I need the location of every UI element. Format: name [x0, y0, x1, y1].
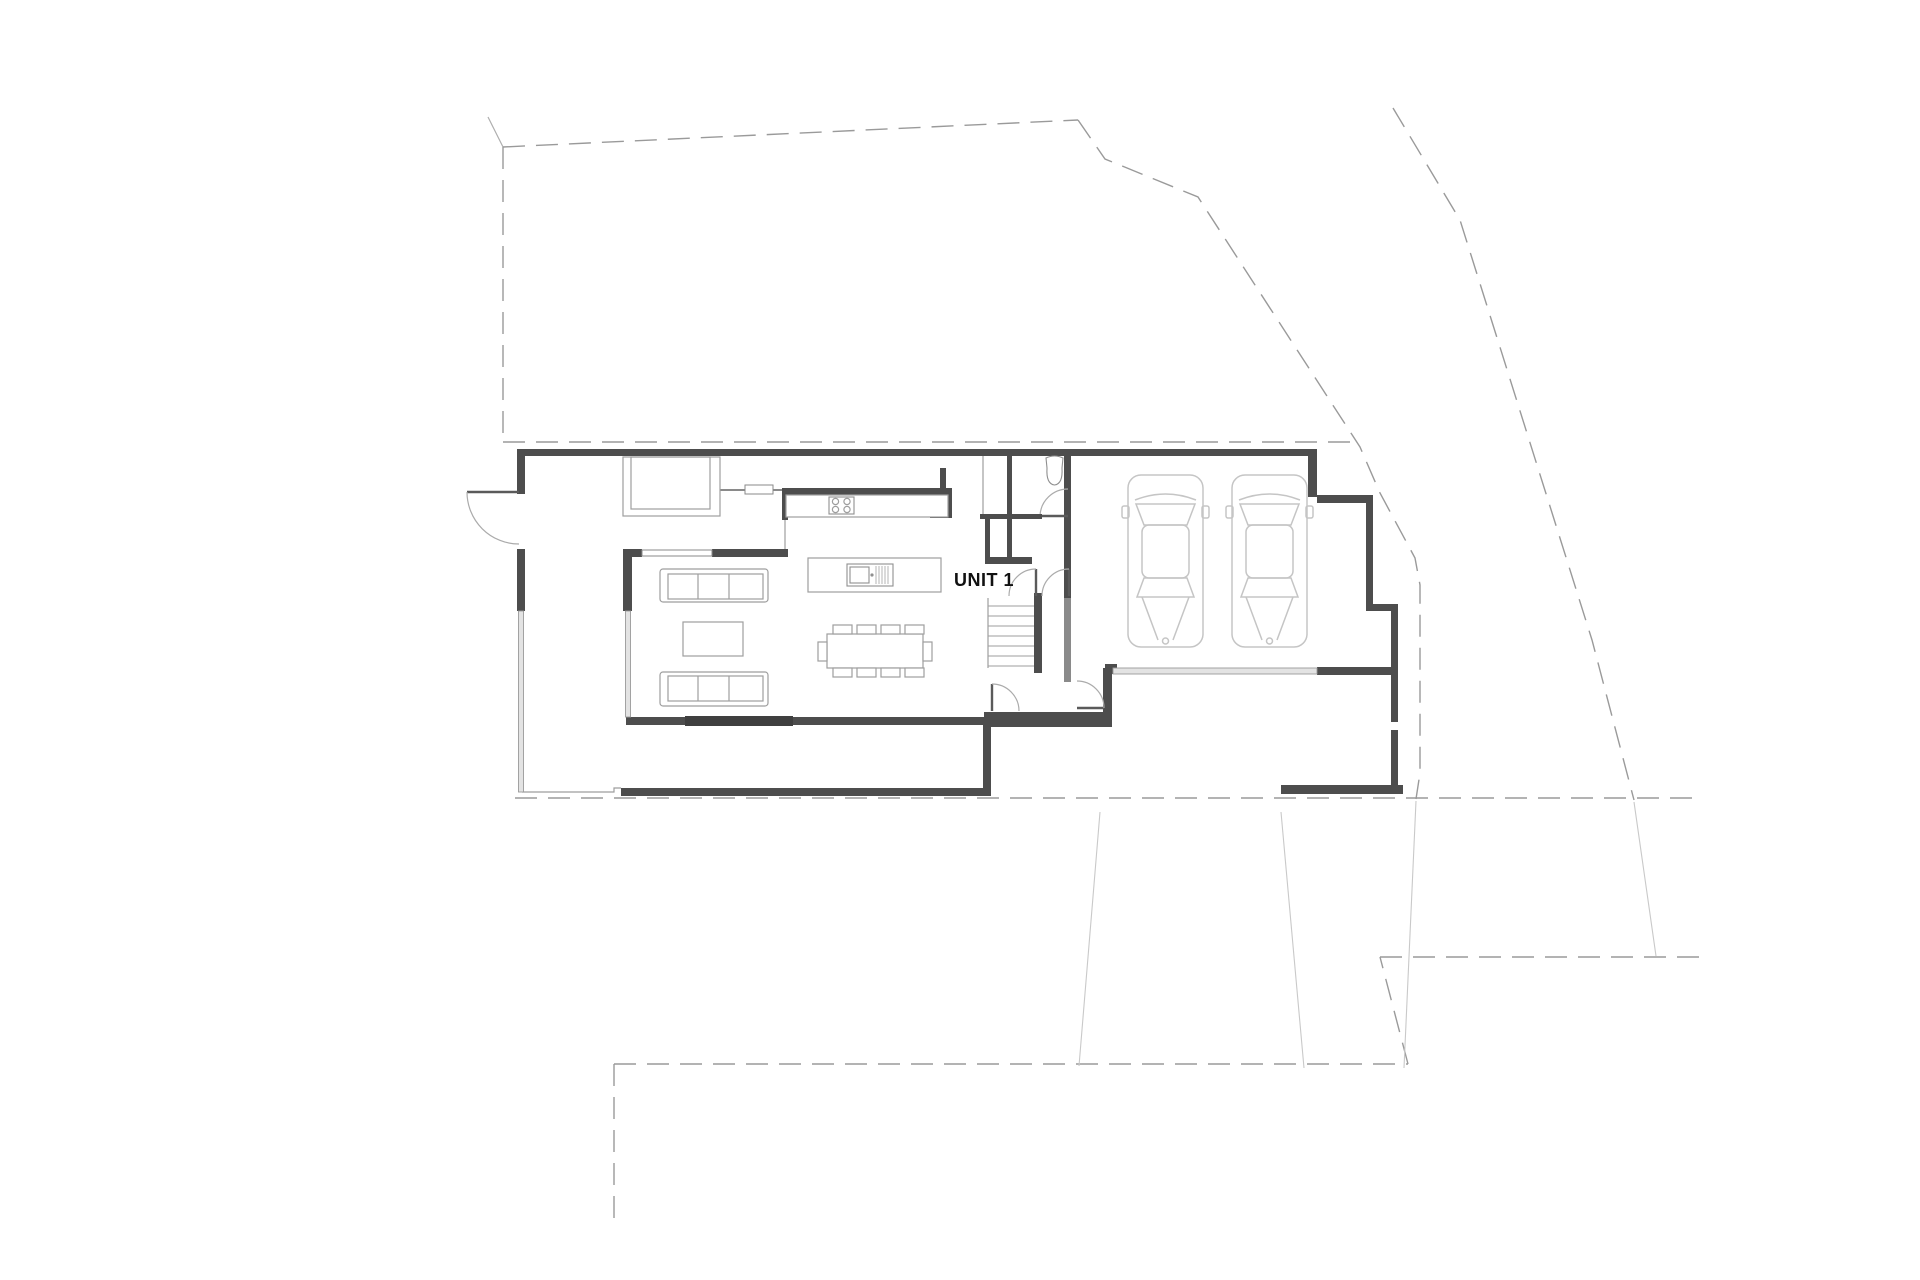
wall-garage-step-h1: [1317, 495, 1373, 503]
driveway-edge-2: [1281, 812, 1304, 1068]
wall-living-west: [623, 557, 632, 611]
unit-label: UNIT 1: [954, 570, 1014, 590]
floor-plan-drawing: UNIT 1: [0, 0, 1920, 1280]
living-room: [660, 569, 768, 706]
car-icon: [1122, 475, 1209, 647]
sink-icon: [847, 564, 893, 586]
stair-well-left: [985, 519, 990, 558]
dining-set: [818, 625, 932, 677]
stair-shaft-upper: [980, 455, 1042, 564]
window-west-exterior: [519, 611, 524, 792]
wall-terrace-connector: [983, 725, 991, 793]
dining-table: [827, 634, 923, 668]
wall-west-upper: [517, 449, 525, 494]
wall-stair-east: [1034, 593, 1042, 673]
driveway-edge-4: [1634, 802, 1656, 956]
wall-living-south: [626, 717, 986, 725]
vestibule-door: [1077, 681, 1104, 708]
wall-kitchen-column: [940, 468, 946, 490]
boundary-south-kink: [1380, 957, 1408, 1064]
boundary-corner-tick: [488, 117, 503, 147]
pantry-inner: [631, 457, 710, 509]
kitchen-counter: [786, 495, 948, 517]
garage: [1122, 475, 1313, 647]
sofa-south: [660, 672, 768, 706]
terrace-edge: [522, 788, 621, 792]
wall-north: [517, 449, 1317, 456]
coffee-table: [683, 622, 743, 656]
wc-door: [1040, 489, 1068, 516]
driveway-edge-3: [1404, 801, 1416, 1068]
dining-chair: [818, 642, 827, 661]
wall-garage-east-c: [1391, 730, 1398, 792]
stair-shaft-wall: [1007, 455, 1012, 560]
wall-vestibule-east: [1103, 668, 1112, 727]
stair-main: [988, 598, 1034, 668]
pantry-outer: [623, 457, 720, 516]
window-garage-south: [1113, 668, 1317, 674]
dining-chair: [881, 668, 900, 677]
boundary-east-inner: [1078, 120, 1420, 799]
wall-terrace-south: [621, 788, 991, 796]
cooktop-icon: [829, 497, 854, 514]
property-boundary-lines: [488, 108, 1700, 1222]
window-band-living-south: [685, 716, 793, 726]
wall-kitchen-back: [782, 488, 952, 495]
dining-chair: [905, 625, 924, 634]
wall-garage-east-a: [1308, 449, 1317, 497]
wall-garage-south-east: [1317, 667, 1398, 675]
floor-plan-page: UNIT 1: [0, 0, 1920, 1280]
dining-chair: [833, 625, 852, 634]
wall-living-north-b: [712, 549, 788, 557]
wall-living-north-a: [623, 549, 642, 557]
car-icon: [1226, 475, 1313, 647]
wall-southeast-court: [1281, 785, 1403, 794]
toilet-icon: [1046, 456, 1063, 485]
window-living-west: [626, 611, 631, 717]
driveway-edge-1: [1079, 812, 1100, 1066]
terrace-outline: [522, 788, 621, 792]
wall-garage-divider-lower: [1064, 598, 1071, 682]
window-kitchen-corridor: [745, 485, 773, 494]
boundary-north: [503, 120, 1078, 147]
window-living-north: [642, 550, 712, 556]
wall-entry-south: [984, 712, 1112, 727]
dining-chair: [857, 668, 876, 677]
sofa-north: [660, 569, 768, 602]
dining-chair: [881, 625, 900, 634]
walls: [517, 449, 1403, 796]
stair-well-top: [980, 514, 1042, 519]
dining-chair: [833, 668, 852, 677]
driveway-lines: [1079, 801, 1656, 1068]
dining-chair: [905, 668, 924, 677]
entry-door: [467, 492, 519, 544]
south-entry-door: [992, 684, 1019, 711]
kitchen: [786, 495, 948, 592]
boundary-east-outer: [1393, 108, 1634, 800]
wall-west-mid: [517, 549, 525, 611]
wall-garage-step-v1: [1366, 495, 1373, 611]
stair-well-bottom: [985, 557, 1032, 564]
dining-chair: [857, 625, 876, 634]
dining-chair: [923, 642, 932, 661]
pantry-storage: [623, 457, 720, 516]
wall-garage-east-b: [1391, 604, 1398, 722]
